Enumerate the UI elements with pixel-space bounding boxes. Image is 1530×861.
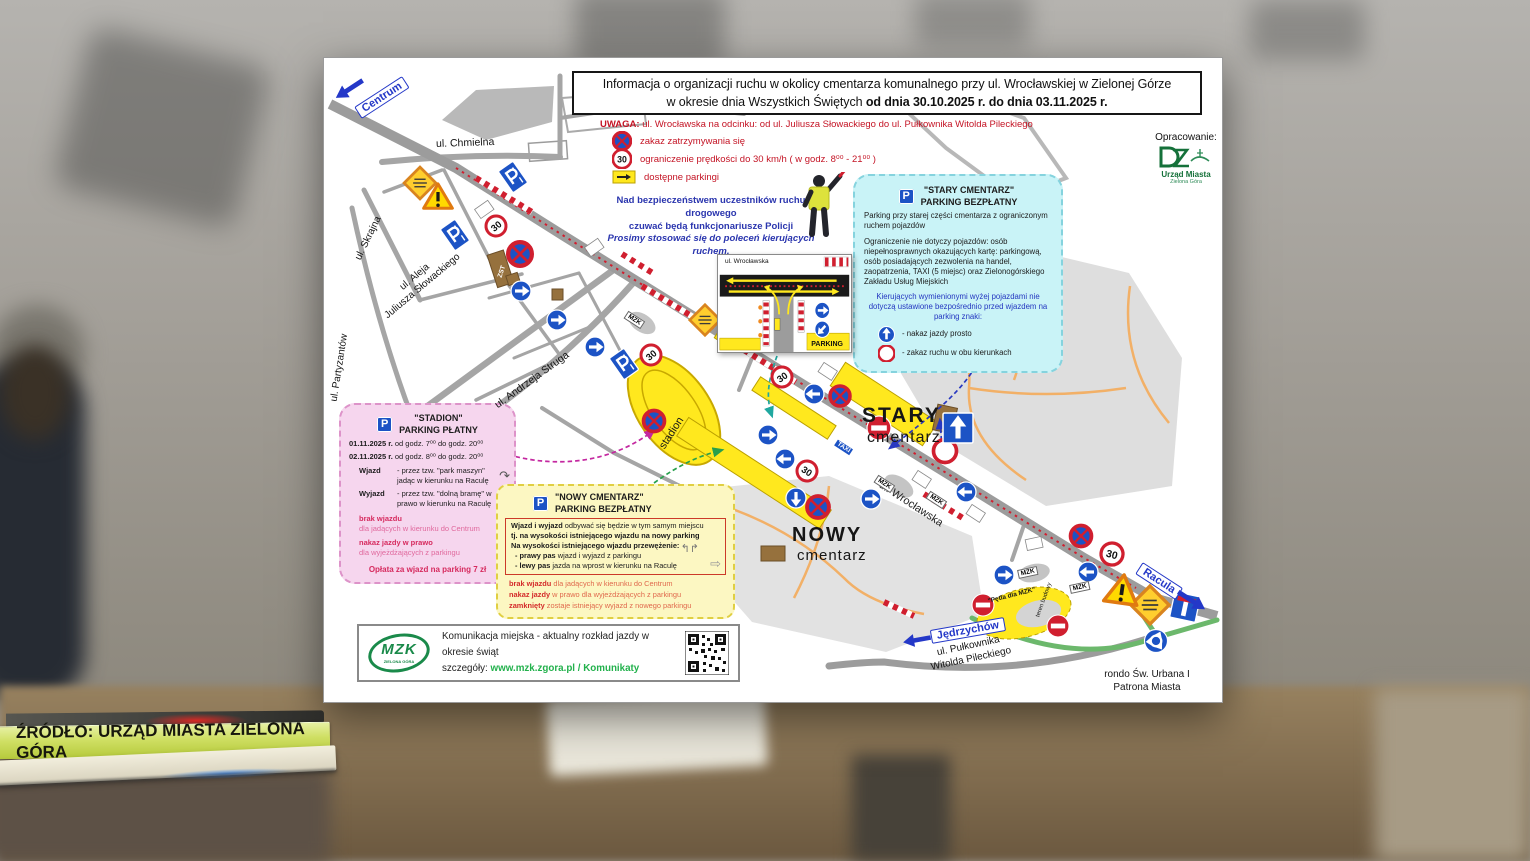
curved-arrow-icon: ↷ bbox=[499, 468, 510, 485]
nowy-cmentarz-infobox: P "NOWY CMENTARZ"PARKING BEZPŁATNY Wjazd… bbox=[496, 484, 735, 619]
stary-cmentarz-infobox: P "STARY CMENTARZ"PARKING BEZPŁATNY Park… bbox=[853, 174, 1063, 373]
uwaga-item: dostępne parkingi bbox=[644, 172, 719, 183]
wjazd-text: - przez tzw. "park maszyn" jadąc w kieru… bbox=[397, 466, 506, 486]
stary-para2: Ograniczenie nie dotyczy pojazdów: osób … bbox=[864, 237, 1052, 288]
nowy-cemetery-sublabel: cmentarz bbox=[797, 547, 867, 564]
stadion-warn1: brak wjazdu bbox=[359, 514, 402, 523]
stadion-title2: PARKING PŁATNY bbox=[399, 425, 478, 435]
stary-cemetery-label: STARY bbox=[862, 404, 941, 428]
desk-leg bbox=[852, 755, 950, 861]
stary-title1: "STARY CMENTARZ" bbox=[924, 185, 1014, 195]
mzk-infobox: MZK ZIELONA GÓRA Komunikacja miejska - a… bbox=[357, 624, 740, 682]
uwaga-label: UWAGA: bbox=[600, 119, 640, 130]
source-banner: ŹRÓDŁO: URZĄD MIASTA ZIELONA GÓRA bbox=[0, 712, 348, 778]
parking-strip-icon bbox=[612, 170, 636, 184]
straight-arrow-icon: ⇨ bbox=[710, 555, 721, 573]
uwaga-item: ograniczenie prędkości do 30 km/h ( w go… bbox=[640, 154, 876, 165]
police-officer-icon bbox=[798, 172, 848, 238]
direction-arrow-sign-icon bbox=[956, 482, 976, 502]
stary-cemetery-sublabel: cmentarz bbox=[867, 429, 941, 447]
direction-arrow-sign-icon bbox=[861, 489, 881, 509]
credit-block: Opracowanie: Urząd Miasta Zielona Góra bbox=[1134, 132, 1238, 186]
person-head bbox=[0, 345, 70, 440]
roundabout-label-line1: rondo Św. Urbana I bbox=[1104, 669, 1190, 680]
police-line2: czuwać będą funkcjonariusze Policji bbox=[629, 221, 793, 232]
speed-30-sign-icon bbox=[482, 212, 510, 240]
stadion-warn2: nakaz jazdy w prawo bbox=[359, 538, 433, 547]
nowy-warn2: nakaz jazdy bbox=[509, 590, 550, 599]
ahead-only-sign-icon bbox=[878, 326, 895, 343]
uwaga-item: zakaz zatrzymywania się bbox=[640, 136, 745, 147]
nowy-lane2-rest: jazda na wprost w kierunku na Raculę bbox=[550, 561, 677, 570]
roundabout-label-line2: Patrona Miasta bbox=[1113, 682, 1180, 693]
no-stopping-sign-icon bbox=[830, 386, 850, 406]
wyjazd-label: Wyjazd bbox=[359, 489, 392, 509]
no-stopping-sign-icon bbox=[612, 131, 632, 151]
parking-badge-icon: P bbox=[377, 417, 392, 432]
direction-arrow-sign-icon bbox=[786, 488, 806, 508]
tv-frame: 30 bbox=[0, 0, 1530, 861]
nowy-warn1: brak wjazdu bbox=[509, 579, 551, 588]
stary-title2: PARKING BEZPŁATNY bbox=[921, 197, 1018, 207]
stary-legend2: - zakaz ruchu w obu kierunkach bbox=[902, 348, 1012, 358]
nowy-in3: Na wysokości istniejącego wjazdu przewęż… bbox=[511, 541, 679, 550]
parking-sign-icon bbox=[498, 161, 528, 193]
direction-arrow-sign-icon bbox=[994, 565, 1014, 585]
direction-arrow-sign-icon bbox=[585, 337, 605, 357]
roundabout-sign-icon bbox=[1145, 630, 1168, 653]
ceiling-fixture-icon bbox=[575, 0, 725, 65]
no-stopping-sign-icon bbox=[508, 242, 532, 266]
stadion-date2: 02.11.2025 r. bbox=[349, 452, 393, 461]
stadion-infobox: P "STADION"PARKING PŁATNY 01.11.2025 r. … bbox=[339, 403, 516, 584]
wjazd-label: Wjazd bbox=[359, 466, 392, 486]
street-label-chmielna: ul. Chmielna bbox=[436, 136, 495, 150]
mzk-logo-sub: ZIELONA GÓRA bbox=[368, 659, 430, 664]
no-vehicles-sign-icon bbox=[878, 345, 895, 362]
roundabout-label: rondo Św. Urbana IPatrona Miasta bbox=[1082, 668, 1212, 694]
direction-arrow-sign-icon bbox=[547, 310, 567, 330]
title-dates: od dnia 30.10.2025 r. do dnia 03.11.2025… bbox=[866, 95, 1108, 109]
nowy-title2: PARKING BEZPŁATNY bbox=[555, 504, 652, 514]
no-stopping-sign-icon bbox=[807, 496, 829, 518]
no-stopping-sign-icon bbox=[644, 411, 665, 432]
mzk-link: www.mzk.zgora.pl / Komunikaty bbox=[490, 663, 639, 674]
police-line1: Nad bezpieczeństwem uczestników ruchu dr… bbox=[617, 195, 806, 219]
junction-inset-diagram: ul. Wrocławska PARKING bbox=[717, 254, 852, 353]
direction-arrow-sign-icon bbox=[804, 384, 824, 404]
nowy-lane1-rest: wjazd i wyjazd z parkingu bbox=[556, 551, 641, 560]
direction-arrow-sign-icon bbox=[1078, 562, 1098, 582]
credit-org2: Zielona Góra bbox=[1134, 179, 1238, 186]
nowy-in1-rest: odbywać się będzie w tym samym miejscu bbox=[563, 521, 704, 530]
mzk-logo-text: MZK bbox=[368, 641, 430, 658]
mzk-logo-icon: MZK ZIELONA GÓRA bbox=[368, 634, 430, 672]
inset-parking-label: PARKING bbox=[811, 341, 843, 348]
uwaga-heading: ul. Wrocławska na odcinku: od ul. Julius… bbox=[642, 119, 1033, 130]
direction-arrow-sign-icon bbox=[511, 281, 531, 301]
city-hall-logo-icon bbox=[1157, 145, 1215, 171]
no-entry-sign-icon bbox=[1047, 615, 1069, 637]
stadion-date1: 01.11.2025 r. bbox=[349, 439, 393, 448]
ceiling-fixture-icon bbox=[1250, 0, 1365, 60]
parking-badge-icon: P bbox=[899, 189, 914, 204]
nowy-warn3: zamknięty bbox=[509, 601, 545, 610]
stary-para1: Parking przy starej części cmentarza z o… bbox=[864, 211, 1052, 231]
traffic-map-document: 30 bbox=[323, 57, 1223, 703]
nowy-lane2: - lewy pas bbox=[515, 561, 550, 570]
parking-badge-icon: P bbox=[533, 496, 548, 511]
stary-legend1: - nakaz jazdy prosto bbox=[902, 329, 972, 339]
stadion-title1: "STADION" bbox=[414, 413, 462, 423]
ceiling-fixture-icon bbox=[915, 0, 1030, 47]
nowy-warn1-rest: dla jadących w kierunku do Centrum bbox=[551, 579, 672, 588]
wyjazd-text: - przez tzw. "dolną bramę" w prawo w kie… bbox=[397, 489, 506, 509]
curved-arrows-icon: ↰↱ bbox=[681, 542, 699, 557]
nowy-in2: tj. na wysokości istniejącego wjazdu na … bbox=[511, 531, 700, 540]
inset-street-label: ul. Wrocławska bbox=[725, 258, 769, 265]
map-title: Informacja o organizacji ruchu w okolicy… bbox=[572, 71, 1202, 115]
nowy-cemetery-label: NOWY bbox=[792, 524, 862, 547]
nowy-warn3-rest: zostaje istniejący wyjazd z nowego parki… bbox=[545, 601, 692, 610]
stadion-date2-hours: od godz. 8⁰⁰ do godz. 20⁰⁰ bbox=[393, 452, 483, 461]
direction-arrow-sign-icon bbox=[758, 425, 778, 445]
nowy-in1: Wjazd i wyjazd bbox=[511, 521, 563, 530]
credit-label: Opracowanie: bbox=[1134, 132, 1238, 143]
stadion-date1-hours: od godz. 7⁰⁰ do godz. 20⁰⁰ bbox=[393, 439, 483, 448]
stary-para3: Kierujących wymienionymi wyżej pojazdami… bbox=[864, 292, 1052, 322]
ahead-only-sign-icon bbox=[943, 413, 973, 443]
credit-org1: Urząd Miasta bbox=[1134, 171, 1238, 179]
floor-corner bbox=[1375, 688, 1530, 861]
junction-inset-drawing bbox=[718, 255, 851, 352]
mzk-line1: Komunikacja miejska - aktualny rozkład j… bbox=[442, 631, 649, 658]
stadion-fee: Opłata za wjazd na parking 7 zł bbox=[349, 565, 506, 575]
no-stopping-sign-icon bbox=[1071, 526, 1092, 547]
mzk-line2-label: szczegóły: bbox=[442, 663, 490, 674]
nowy-title1: "NOWY CMENTARZ" bbox=[555, 492, 644, 502]
nowy-lane1: - prawy pas bbox=[515, 551, 556, 560]
title-line1: Informacja o organizacji ruchu w okolicy… bbox=[603, 77, 1171, 91]
stadion-warn1-rest: dla jadących w kierunku do Centrum bbox=[359, 524, 480, 533]
qr-code bbox=[685, 631, 729, 675]
direction-arrow-sign-icon bbox=[775, 449, 795, 469]
stadion-warn2-rest: dla wyjeżdżających z parkingu bbox=[359, 548, 460, 557]
speed-30-sign-icon bbox=[612, 149, 632, 169]
police-note: Nad bezpieczeństwem uczestników ruchu dr… bbox=[592, 195, 830, 259]
nowy-warn2-rest: w prawo dla wyjeżdżających z parkingu bbox=[550, 590, 681, 599]
title-line2: w okresie dnia Wszystkich Świętych bbox=[666, 95, 865, 109]
